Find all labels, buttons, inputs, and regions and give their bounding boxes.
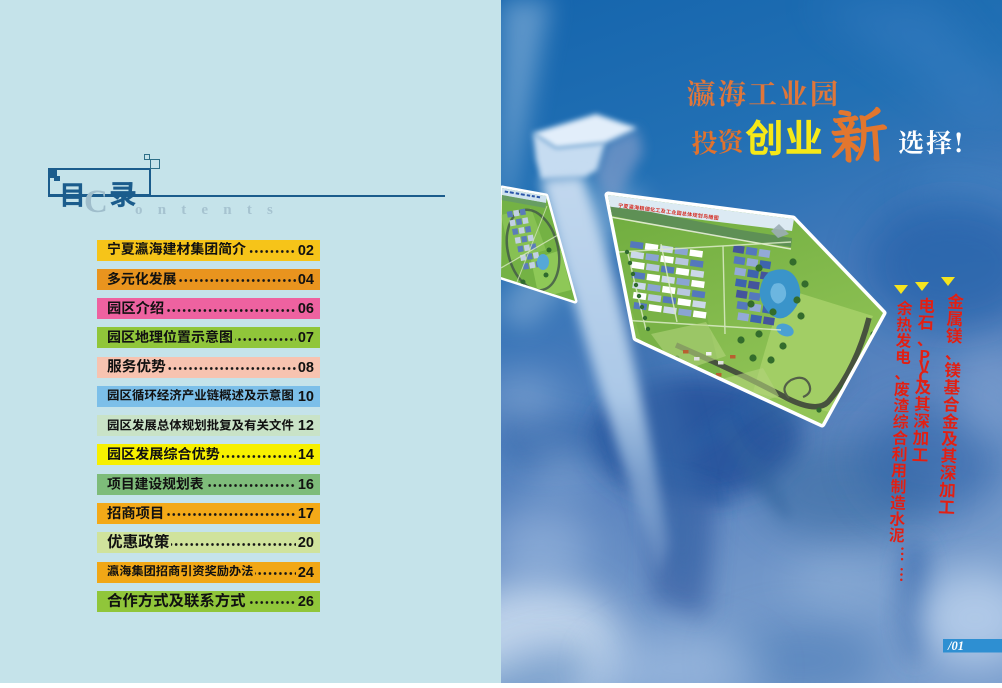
svg-text:/01: /01 [947, 639, 964, 653]
